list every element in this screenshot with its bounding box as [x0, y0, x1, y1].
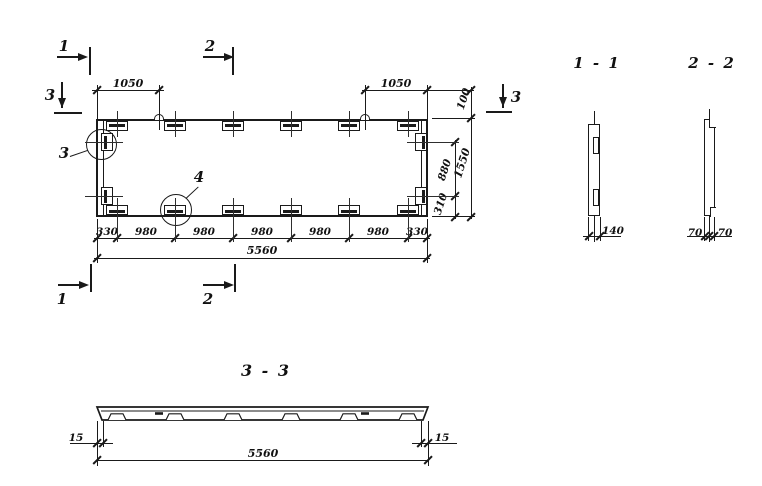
dim-chain-980-4: 980	[300, 226, 340, 238]
ext-line-loop-left	[159, 85, 160, 130]
ext-line	[714, 217, 715, 241]
dim-tick	[467, 213, 476, 222]
embed-centerline	[407, 142, 459, 143]
section-mark-2-bottom: 2	[200, 291, 216, 308]
embed-centerline	[117, 111, 118, 137]
section-1-1-centerline-bottom	[594, 216, 595, 242]
dim-line-5560-section	[97, 460, 429, 461]
dim-chain-980-5: 980	[358, 226, 398, 238]
detail-label-3: 3	[56, 145, 72, 162]
embed-centerline	[233, 198, 234, 242]
embed-centerline	[408, 198, 409, 242]
embed-centerline	[117, 198, 118, 242]
embed-centerline	[85, 196, 123, 197]
dim-line-1050-left	[92, 90, 164, 91]
dim-chain-980-2: 980	[184, 226, 224, 238]
dim-line-bottom-overall	[94, 258, 430, 259]
embed-centerline	[291, 111, 292, 137]
embed-centerline	[175, 111, 176, 137]
dim-5560-section: 5560	[238, 448, 288, 461]
embed-centerline	[233, 111, 234, 137]
section-1-1-recess-top	[593, 137, 600, 154]
section-2-2-title: 2 - 2	[682, 55, 742, 72]
section-cut-stroke	[502, 84, 504, 108]
dim-1050-right: 1050	[371, 78, 421, 91]
section-cut-stroke	[89, 47, 91, 75]
section-mark-line	[54, 112, 82, 114]
section-mark-line	[203, 284, 230, 286]
dim-line-right-overall	[471, 87, 472, 219]
section-cut-stroke	[61, 82, 63, 108]
section-mark-1-top: 1	[56, 38, 72, 55]
section-2-2-notch-bottom	[710, 207, 717, 217]
embed-centerline	[85, 142, 123, 143]
dim-line-15-left	[70, 443, 113, 444]
section-mark-3-left: 3	[42, 87, 58, 104]
section-3-3-profile	[88, 398, 434, 426]
dim-line-bottom-chain	[94, 238, 430, 239]
embed-centerline	[175, 198, 176, 242]
section-cut-stroke	[234, 264, 236, 292]
dim-chain-330-left: 330	[87, 226, 127, 238]
dim-tick	[451, 213, 460, 222]
ext-line-loop-right	[365, 85, 366, 130]
dim-310: 310	[431, 189, 451, 219]
section-3-3-loop-mark-right	[361, 412, 369, 415]
embed-centerline	[349, 198, 350, 242]
section-2-2-centerline-top	[709, 109, 710, 119]
dim-5560-plan: 5560	[237, 245, 287, 258]
section-mark-line	[57, 56, 84, 58]
section-cut-stroke	[232, 47, 234, 75]
dim-line-right-chain	[455, 140, 456, 219]
leader-line-3	[70, 150, 88, 157]
technical-drawing-panel: 1 2 3 3 1 2 3 4 1050 1050 100 1550 880 3…	[0, 0, 762, 486]
section-1-1-recess-bottom	[593, 189, 600, 206]
section-2-2-notch-top	[709, 118, 716, 129]
detail-label-4: 4	[191, 169, 207, 186]
panel-plan-outline	[96, 119, 428, 217]
section-3-3-loop-mark-left	[155, 412, 163, 415]
section-3-3-title: 3 - 3	[234, 362, 298, 380]
section-2-2-body	[704, 119, 715, 216]
dim-line-1050-right	[362, 90, 474, 91]
section-mark-line	[58, 284, 85, 286]
section-1-1-centerline-top	[594, 111, 595, 124]
embed-centerline	[349, 111, 350, 137]
section-mark-line	[486, 111, 512, 113]
embed-centerline	[291, 198, 292, 242]
section-mark-3-right: 3	[508, 89, 524, 106]
dim-chain-330-right: 330	[397, 226, 437, 238]
section-mark-1-bottom: 1	[54, 291, 70, 308]
dim-70-right: 70	[717, 227, 733, 239]
section-mark-line	[203, 56, 230, 58]
section-1-1-title: 1 - 1	[567, 55, 627, 72]
embed-centerline	[407, 196, 459, 197]
dim-1050-left: 1050	[103, 78, 153, 91]
section-3-3-outline	[97, 407, 428, 420]
section-mark-2-top: 2	[202, 38, 218, 55]
dim-chain-980-1: 980	[126, 226, 166, 238]
section-cut-stroke	[90, 264, 92, 292]
embed-centerline	[408, 111, 409, 137]
dim-chain-980-3: 980	[242, 226, 282, 238]
